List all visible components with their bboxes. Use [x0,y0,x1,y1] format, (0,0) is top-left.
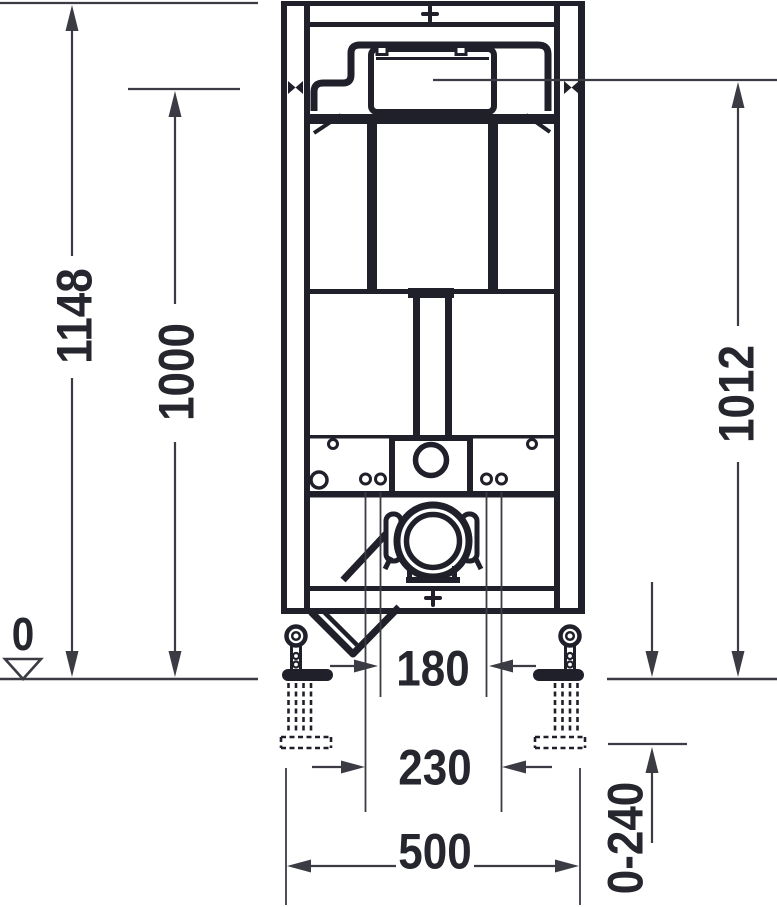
left-foot [281,627,333,749]
arrow-down-icon [646,651,659,677]
dimension-230: 230 [312,739,552,795]
fixing-hole-outer-right [497,474,507,484]
right-rail-outer [578,1,585,614]
dim-0-240-label: 0-240 [597,782,653,895]
left-rail-inner [304,3,310,614]
left-foot-hole-1 [293,653,299,659]
right-foot-telescope-dashes [535,683,585,748]
dim-1148-label: 1148 [46,268,102,363]
arrow-left-icon [502,761,526,774]
left-fixing-mark-icon [288,81,303,94]
arrow-down-icon [732,651,745,677]
arrow-down-icon [169,651,182,677]
center-box-opening [416,445,447,476]
center-mark-bottom-icon [426,591,440,605]
arrow-right-icon [555,860,579,873]
plate-hole-large-left [311,472,327,488]
mounting-plate [310,435,554,498]
arrow-up-icon [732,82,745,108]
inner-upright-left [367,124,377,291]
arrow-left-icon [287,860,311,873]
flush-pipe-wall-right [445,296,452,437]
inner-upright-right [488,124,498,291]
dim-180-label: 180 [396,640,469,696]
right-foot-hole-2 [567,662,573,668]
right-foot-plate [533,669,584,681]
right-fixing-mark-icon [564,81,579,94]
zero-level-label: 0 [12,610,35,661]
installation-frame-drawing: 1148 1000 1012 0-240 0 180 [0,0,777,907]
right-foot-hole-1 [567,653,573,659]
flush-pipe-wall-left [413,296,420,437]
left-rail-outer [281,1,287,614]
technical-drawing-canvas: 1148 1000 1012 0-240 0 180 [0,0,777,907]
dimension-1148: 1148 [46,5,102,677]
drain-tab-right [475,557,481,569]
frame-top-bar [281,1,585,6]
dimension-1000: 1000 [148,91,204,677]
left-foot-bolt-center [292,632,300,640]
arrow-right-icon [341,761,365,774]
fixing-hole-outer-left [361,474,371,484]
arrow-down-icon [66,651,79,677]
dimension-aux-floor [646,582,659,677]
cistern-lid-tab-left [377,47,387,55]
center-mark-top-icon [423,7,437,21]
right-foot-bolt-center [566,632,574,640]
cistern-support-bar [310,114,554,124]
dimension-0-240: 0-240 [597,747,659,894]
drain-outlet [311,505,481,654]
middle-section [310,124,554,437]
cistern-lid-tab-right [456,47,466,55]
fixing-hole-inner-right [482,474,492,484]
arrow-up-icon [66,5,79,31]
level-mark-icon [5,659,41,679]
dim-230-label: 230 [398,739,471,795]
left-foot-hole-2 [293,662,299,668]
right-foot [533,627,585,749]
dimension-500: 500 [287,823,579,879]
dim-1000-label: 1000 [148,323,204,421]
frame-top-inner-line [304,22,560,27]
plate-hole-top-right [528,440,537,449]
dim-500-label: 500 [398,823,471,879]
drain-base-bar [406,577,460,583]
left-foot-telescope-dashes [281,683,331,748]
plate-hole-top-left [329,440,338,449]
right-rail-inner [554,3,560,614]
fixing-hole-inner-left [376,474,386,484]
arrow-up-icon [646,747,659,773]
dim-1012-label: 1012 [708,345,764,443]
arrow-up-icon [169,91,182,117]
cistern [310,45,554,133]
zero-level: 0 [5,610,41,679]
left-foot-plate [282,669,333,681]
dimension-1012: 1012 [708,82,764,677]
